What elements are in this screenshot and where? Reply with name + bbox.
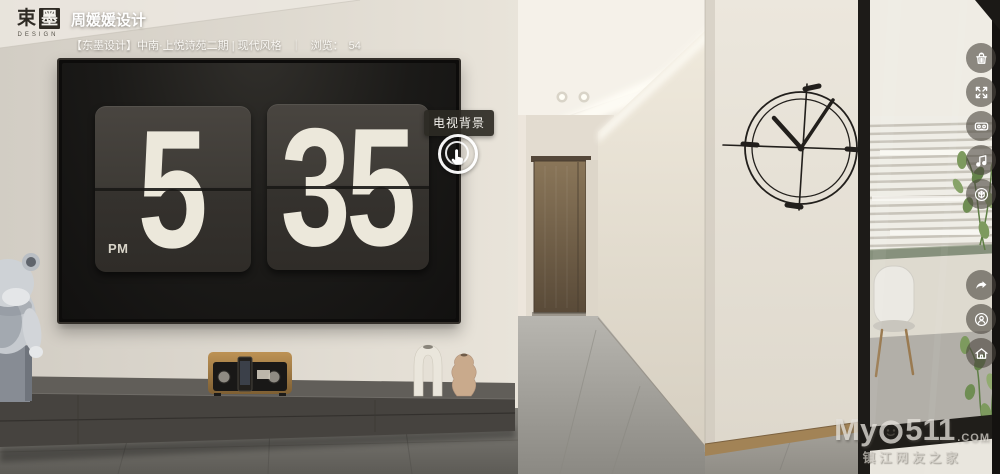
logo-mark: 束 墨: [16, 8, 60, 29]
share-icon: [973, 277, 990, 294]
subtitle-divider: ｜: [291, 40, 302, 52]
site-watermark: My 511 .COM 镇江网友之家: [834, 414, 990, 466]
titles: 周媛媛设计 【东墨设计】中南·上悦诗苑二期 | 现代风格｜浏览：54: [71, 8, 361, 53]
project-name: 【东墨设计】中南·上悦诗苑二期 | 现代风格: [71, 40, 282, 52]
toolbar-button-contact[interactable]: [966, 304, 996, 334]
project-subtitle: 【东墨设计】中南·上悦诗苑二期 | 现代风格｜浏览：54: [71, 37, 361, 53]
hotspot-tooltip: 电视背景: [424, 110, 494, 136]
watermark-logo: My 511 .COM: [834, 414, 990, 445]
flip-split-line: [95, 188, 251, 191]
gyroscope-icon: [973, 186, 990, 203]
hallway-door: [532, 161, 590, 316]
radio: [208, 352, 292, 396]
brand-logo: 束 墨 DESIGN: [16, 8, 60, 53]
fullscreen-icon: [973, 84, 990, 101]
contact-icon: [973, 311, 990, 328]
flip-card-minute: 35: [267, 104, 429, 270]
toolbar-button-vr[interactable]: [966, 111, 996, 141]
tap-hand-icon: [449, 148, 466, 167]
home-icon: [973, 345, 990, 362]
logo-subtext: DESIGN: [17, 32, 58, 38]
vr-goggles-icon: [973, 118, 990, 135]
toolbar-button-home[interactable]: [966, 338, 996, 368]
views-count: 54: [349, 40, 361, 52]
trash-icon: [973, 50, 990, 67]
header-overlay: 束 墨 DESIGN 周媛媛设计 【东墨设计】中南·上悦诗苑二期 | 现代风格｜…: [16, 8, 361, 53]
sculpt-vase: [452, 354, 476, 397]
tv-background-hotspot[interactable]: [438, 134, 478, 174]
toolbar-button-fullscreen[interactable]: [966, 77, 996, 107]
smiley-zero-icon: [878, 418, 904, 444]
logo-char-2: 墨: [39, 8, 60, 29]
toolbar-button-trash[interactable]: [966, 43, 996, 73]
music-note-icon: [973, 152, 990, 169]
panorama-viewer[interactable]: 5 PM 35 束 墨 DESIGN 周媛媛设计 【东墨设计】中南·上悦诗苑二期…: [0, 0, 1000, 474]
toolbar-button-music[interactable]: [966, 145, 996, 175]
toolbar-button-gyroscope[interactable]: [966, 179, 996, 209]
toolbar-button-share[interactable]: [966, 270, 996, 300]
meridiem-label: PM: [108, 241, 129, 256]
watermark-digits: 511: [905, 414, 955, 445]
watermark-tagline: 镇江网友之家: [834, 447, 990, 466]
watermark-suffix: .COM: [957, 433, 990, 444]
hallway: [518, 0, 710, 474]
clock-wall: [705, 0, 862, 474]
logo-char-1: 束: [16, 8, 37, 29]
views-label: 浏览：: [311, 40, 344, 52]
watermark-prefix: My: [834, 414, 877, 445]
flip-clock-tv: 5 PM 35: [57, 58, 461, 324]
flip-split-line: [267, 186, 429, 189]
flip-card-hour: 5 PM: [95, 106, 251, 272]
page-title: 周媛媛设计: [71, 9, 361, 30]
